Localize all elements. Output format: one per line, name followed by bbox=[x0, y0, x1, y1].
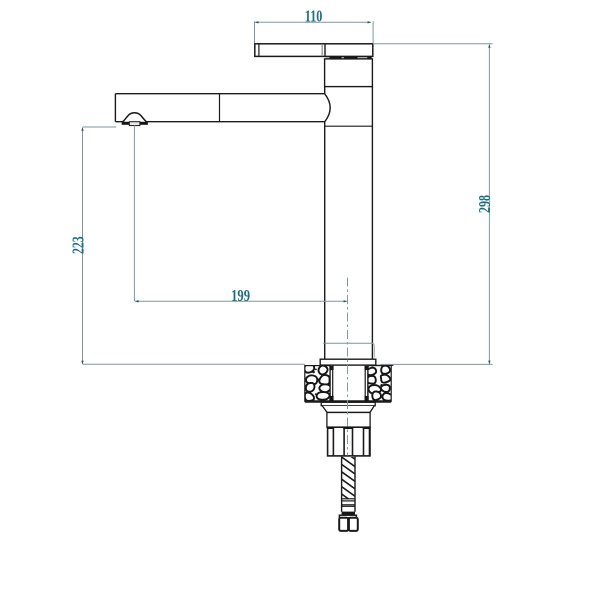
svg-text:223: 223 bbox=[69, 236, 88, 254]
svg-text:199: 199 bbox=[231, 286, 250, 305]
svg-text:298: 298 bbox=[475, 195, 494, 213]
svg-text:110: 110 bbox=[305, 7, 323, 26]
